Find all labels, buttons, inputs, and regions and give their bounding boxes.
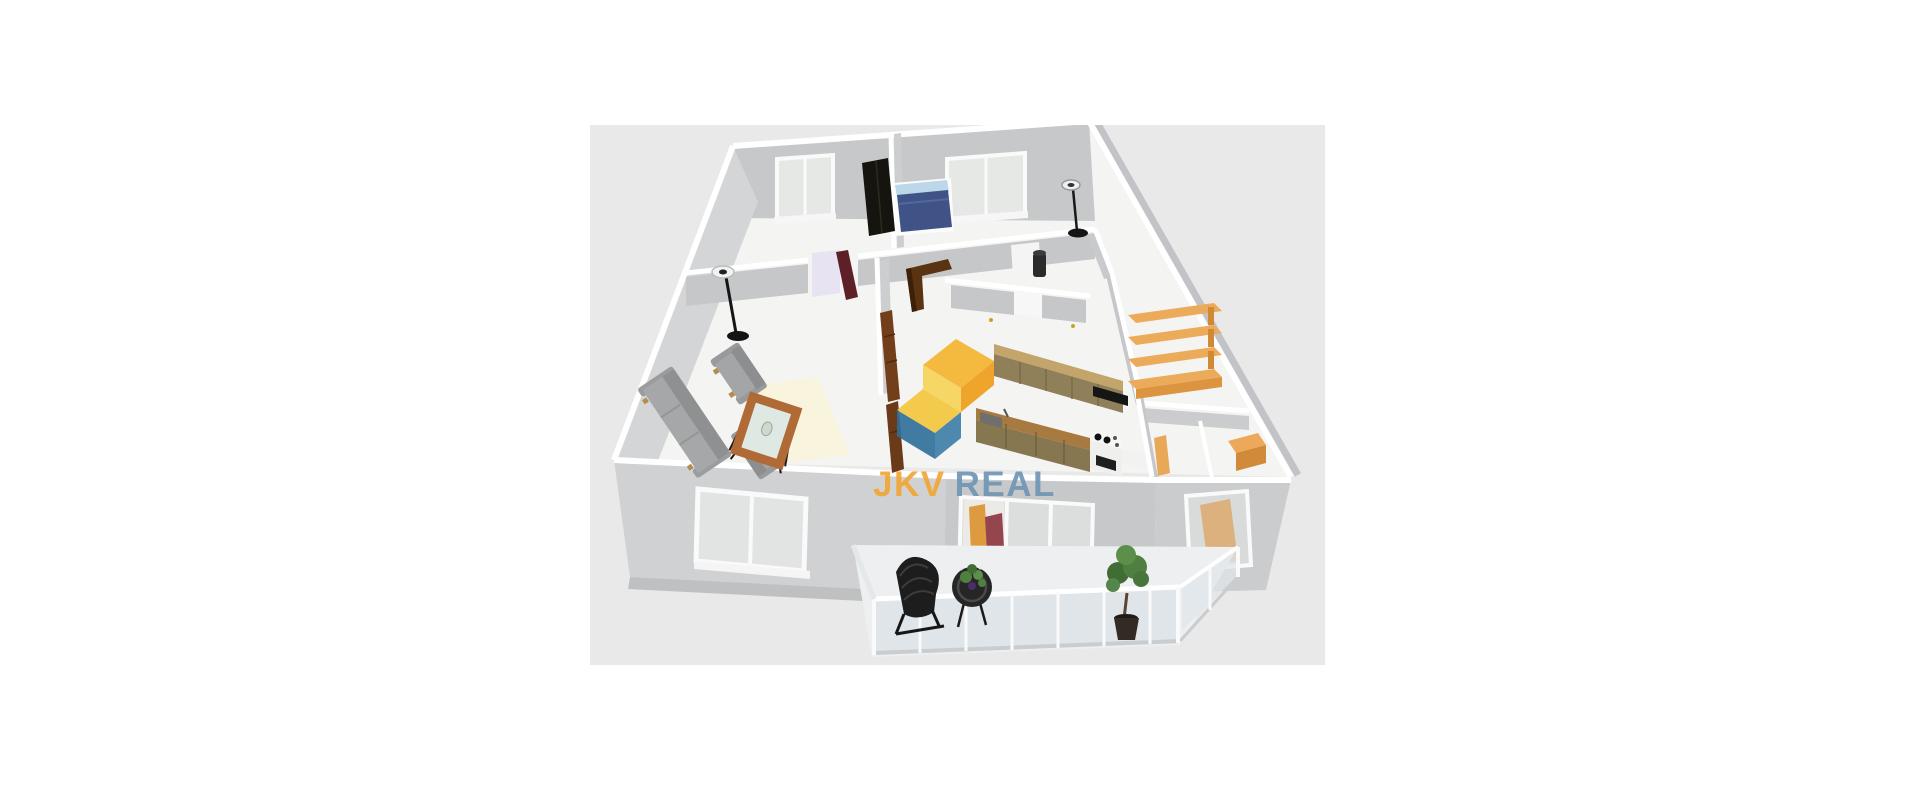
door-handle bbox=[1071, 324, 1075, 328]
tree-pot bbox=[1114, 618, 1139, 640]
bed-mattress bbox=[897, 190, 952, 232]
balcony bbox=[853, 545, 1238, 657]
watermark-text-jkv: JKV bbox=[873, 465, 946, 504]
floorplan-canvas: JKVREAL bbox=[590, 125, 1325, 665]
door-handle bbox=[989, 318, 993, 322]
bedroom-right-window bbox=[944, 153, 1028, 224]
doorway-opening bbox=[812, 250, 840, 297]
purple-flower bbox=[968, 582, 976, 590]
page-background: JKVREAL bbox=[0, 0, 1920, 800]
double-bed bbox=[893, 178, 954, 236]
bedroom-left-window bbox=[774, 155, 836, 224]
living-room-front-window bbox=[694, 489, 810, 579]
watermark-text-real: REAL bbox=[955, 465, 1056, 504]
watermark-text: JKVREAL bbox=[873, 465, 1056, 504]
